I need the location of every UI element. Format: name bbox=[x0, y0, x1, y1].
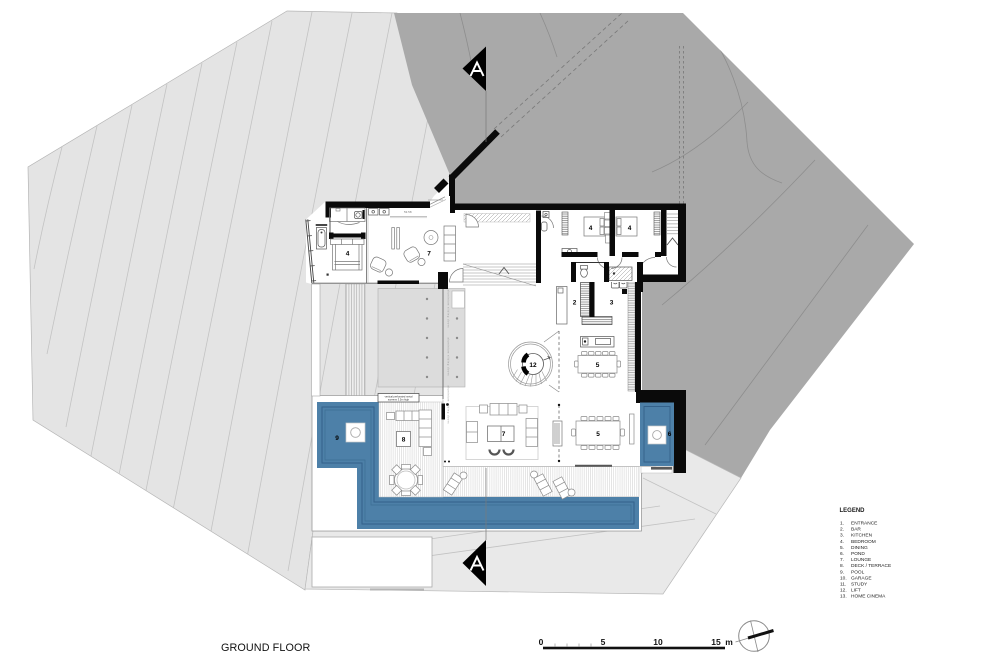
svg-text:9.: 9. bbox=[840, 569, 844, 575]
svg-text:aluminium sliding doors: aluminium sliding doors bbox=[447, 386, 451, 425]
svg-text:4: 4 bbox=[346, 251, 350, 258]
svg-text:4: 4 bbox=[589, 225, 593, 232]
svg-text:aluminium sliding doors: aluminium sliding doors bbox=[447, 290, 451, 329]
svg-text:BEDROOM: BEDROOM bbox=[851, 539, 876, 545]
svg-text:7.: 7. bbox=[840, 557, 844, 563]
svg-text:POND: POND bbox=[851, 551, 865, 557]
svg-text:2.: 2. bbox=[840, 527, 844, 533]
svg-text:HOME CINEMA: HOME CINEMA bbox=[851, 594, 886, 600]
svg-text:53.58: 53.58 bbox=[404, 210, 412, 214]
svg-text:3.: 3. bbox=[840, 533, 844, 539]
svg-text:LEGEND: LEGEND bbox=[840, 508, 866, 514]
svg-text:GROUND FLOOR: GROUND FLOOR bbox=[221, 642, 310, 654]
svg-text:LIFT: LIFT bbox=[851, 588, 861, 594]
svg-text:LOUNGE: LOUNGE bbox=[851, 557, 871, 563]
svg-text:5: 5 bbox=[601, 637, 606, 647]
svg-text:12: 12 bbox=[529, 362, 537, 369]
svg-text:1.: 1. bbox=[840, 521, 844, 527]
svg-text:13.: 13. bbox=[840, 594, 847, 600]
svg-text:7: 7 bbox=[427, 251, 431, 258]
svg-text:screens 3.5m high: screens 3.5m high bbox=[388, 398, 410, 402]
svg-text:4.: 4. bbox=[840, 539, 844, 545]
svg-text:KITCHEN: KITCHEN bbox=[851, 533, 873, 539]
svg-text:aluminium sliding doors: aluminium sliding doors bbox=[447, 338, 451, 377]
svg-text:POOL: POOL bbox=[851, 569, 865, 575]
svg-text:8: 8 bbox=[402, 437, 406, 444]
svg-text:11.: 11. bbox=[840, 582, 846, 588]
svg-text:0: 0 bbox=[539, 637, 544, 647]
svg-text:STUDY: STUDY bbox=[851, 582, 868, 588]
svg-text:5: 5 bbox=[596, 431, 600, 438]
svg-text:9: 9 bbox=[335, 435, 339, 442]
svg-text:6: 6 bbox=[668, 431, 672, 438]
svg-text:5: 5 bbox=[596, 362, 600, 369]
svg-text:4: 4 bbox=[628, 225, 632, 232]
svg-text:6.: 6. bbox=[840, 551, 844, 557]
svg-text:3: 3 bbox=[610, 300, 614, 307]
svg-text:10.: 10. bbox=[840, 575, 847, 581]
svg-text:DINING: DINING bbox=[851, 545, 868, 551]
svg-text:2: 2 bbox=[573, 300, 577, 307]
svg-text:7: 7 bbox=[502, 431, 506, 438]
svg-text:BAR: BAR bbox=[851, 527, 861, 533]
svg-text:12.: 12. bbox=[840, 588, 847, 594]
svg-text:ENTRANCE: ENTRANCE bbox=[851, 521, 877, 527]
svg-text:GARAGE: GARAGE bbox=[851, 575, 872, 581]
svg-text:8.: 8. bbox=[840, 563, 844, 569]
svg-text:15: 15 bbox=[711, 637, 721, 647]
svg-text:DECK / TERRACE: DECK / TERRACE bbox=[851, 563, 891, 569]
svg-text:5.: 5. bbox=[840, 545, 844, 551]
svg-text:10: 10 bbox=[653, 637, 663, 647]
svg-text:m: m bbox=[725, 637, 733, 647]
